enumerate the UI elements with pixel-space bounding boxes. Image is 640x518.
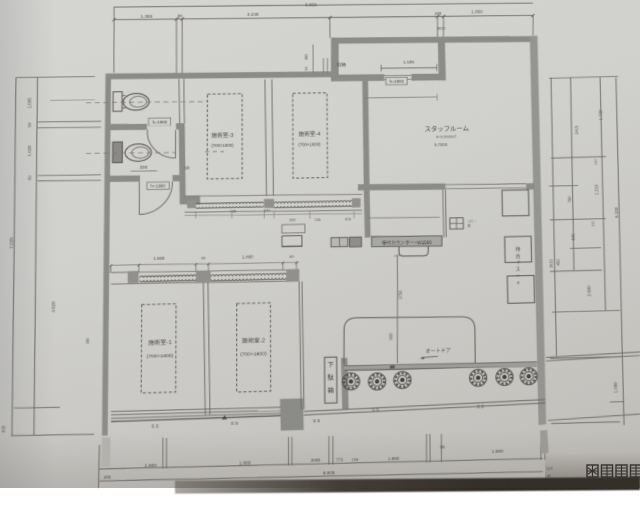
svg-text:1.990: 1.990 — [388, 456, 400, 461]
svg-text:1.210: 1.210 — [594, 184, 599, 195]
svg-text:7.025: 7.025 — [9, 237, 14, 249]
svg-text:112: 112 — [591, 221, 595, 227]
svg-text:1.990: 1.990 — [492, 449, 504, 454]
svg-text:h=1965: h=1965 — [152, 119, 167, 124]
svg-text:90: 90 — [305, 67, 309, 71]
svg-text:190: 190 — [434, 11, 442, 16]
svg-text:施術室-1: 施術室-1 — [148, 338, 171, 347]
svg-text:(700×1800): (700×1800) — [211, 143, 234, 148]
svg-text:3615: 3615 — [548, 258, 553, 268]
svg-text:S S: S S — [372, 407, 379, 412]
svg-text:1.660: 1.660 — [144, 462, 157, 468]
svg-text:1.480: 1.480 — [242, 254, 254, 259]
svg-text:1750: 1750 — [398, 290, 403, 300]
svg-text:1.680: 1.680 — [239, 460, 251, 465]
svg-text:158: 158 — [352, 457, 360, 462]
svg-text:(700×1800): (700×1800) — [240, 351, 267, 358]
svg-text:970: 970 — [264, 209, 270, 213]
svg-text:1.850: 1.850 — [471, 9, 483, 14]
svg-text:110: 110 — [594, 159, 598, 165]
svg-text:1.365: 1.365 — [141, 14, 153, 19]
svg-text:2.830: 2.830 — [586, 285, 591, 296]
svg-text:h=1980: h=1980 — [151, 183, 166, 188]
svg-text:9.7000: 9.7000 — [434, 142, 448, 147]
svg-text:イ: イ — [516, 261, 521, 266]
svg-text:450: 450 — [555, 258, 560, 266]
svg-text:773: 773 — [336, 457, 344, 462]
svg-text:(700×1800): (700×1800) — [147, 353, 174, 360]
svg-text:S S: S S — [231, 421, 238, 426]
svg-text:1.005: 1.005 — [27, 97, 32, 108]
svg-text:4.820: 4.820 — [51, 301, 56, 313]
svg-text:収納: 収納 — [337, 61, 347, 68]
svg-text:1.660: 1.660 — [153, 256, 165, 261]
svg-text:×: × — [517, 273, 520, 279]
svg-text:3825: 3825 — [437, 27, 445, 31]
svg-text:A=9.5000㎡: A=9.5000㎡ — [436, 134, 456, 139]
svg-text:90: 90 — [201, 255, 206, 260]
svg-text:ス: ス — [515, 267, 520, 273]
svg-text:施術室-4: 施術室-4 — [299, 130, 321, 138]
svg-text:箱: 箱 — [327, 387, 333, 395]
svg-text:485: 485 — [304, 54, 308, 60]
svg-text:90: 90 — [178, 13, 183, 18]
svg-text:1.080: 1.080 — [613, 382, 618, 394]
svg-text:1.020: 1.020 — [27, 145, 32, 156]
svg-text:200: 200 — [289, 218, 295, 222]
svg-text:8.905: 8.905 — [323, 470, 335, 475]
svg-text:スタッフルーム: スタッフルーム — [425, 123, 469, 132]
svg-text:下: 下 — [328, 362, 334, 369]
svg-text:1.195: 1.195 — [403, 60, 415, 65]
svg-text:2415: 2415 — [574, 125, 579, 135]
svg-text:施術室-3: 施術室-3 — [211, 131, 233, 139]
svg-text:90: 90 — [27, 122, 32, 127]
svg-text:(700×1800): (700×1800) — [298, 142, 321, 147]
svg-text:コピー: コピー — [467, 218, 477, 223]
svg-text:90: 90 — [440, 444, 446, 449]
svg-text:オートドア: オートドア — [426, 348, 451, 355]
svg-text:3.245: 3.245 — [247, 12, 259, 17]
svg-text:165: 165 — [103, 474, 111, 479]
svg-text:645: 645 — [570, 233, 575, 241]
svg-text:900: 900 — [388, 332, 393, 340]
svg-text:725: 725 — [314, 218, 320, 222]
svg-text:1.720: 1.720 — [598, 109, 603, 120]
svg-text:190: 190 — [86, 338, 90, 344]
svg-text:6.100: 6.100 — [614, 207, 619, 218]
svg-text:2060: 2060 — [311, 458, 321, 463]
svg-text:90: 90 — [27, 175, 32, 180]
svg-text:待: 待 — [515, 246, 520, 253]
svg-text:機: 機 — [467, 223, 471, 228]
svg-text:S S: S S — [313, 418, 320, 423]
svg-text:725: 725 — [230, 209, 236, 213]
svg-text:435: 435 — [1, 425, 6, 433]
svg-text:S S: S S — [151, 423, 158, 428]
svg-text:970: 970 — [345, 218, 351, 222]
svg-text:S S: S S — [477, 404, 484, 409]
svg-text:330: 330 — [140, 165, 148, 170]
svg-text:駄: 駄 — [327, 374, 333, 382]
svg-text:合: 合 — [515, 253, 520, 260]
svg-text:施術室-2: 施術室-2 — [242, 336, 265, 345]
svg-text:90: 90 — [184, 165, 190, 170]
svg-text:4: 4 — [517, 280, 520, 286]
svg-text:90: 90 — [289, 254, 294, 259]
svg-text:8.850: 8.850 — [305, 2, 317, 7]
svg-text:760: 760 — [567, 195, 572, 202]
svg-text:h=1983: h=1983 — [389, 79, 404, 84]
